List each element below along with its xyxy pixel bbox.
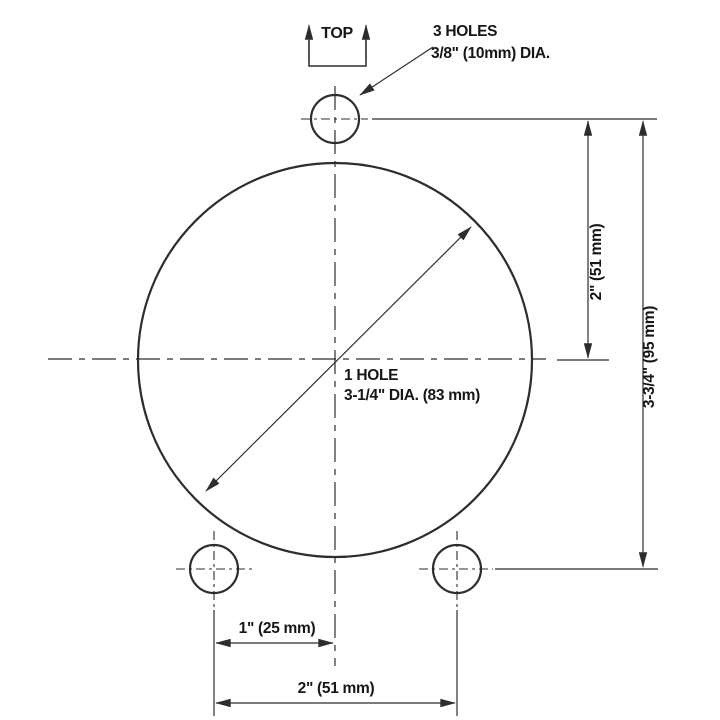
dimension-label-2in-vertical: 2" (51 mm)	[588, 224, 605, 301]
top-marker-bracket	[309, 40, 366, 66]
center-hole-callout-line1: 1 HOLE	[344, 367, 398, 384]
dimension-label-3-3-4in-vertical: 3-3/4" (95 mm)	[641, 306, 658, 408]
top-marker-label: TOP	[321, 25, 353, 42]
three-holes-callout-line1: 3 HOLES	[433, 23, 497, 40]
center-hole-callout-line2: 3-1/4" DIA. (83 mm)	[344, 387, 480, 404]
three-holes-leader-arrow	[360, 47, 433, 95]
dimension-label-1in-horizontal: 1" (25 mm)	[239, 620, 316, 637]
drawing-canvas: TOP 3 HOLES 3/8" (10mm) DIA. 1 HOLE 3-1/…	[0, 0, 720, 720]
dimension-label-2in-horizontal: 2" (51 mm)	[298, 680, 375, 697]
three-holes-callout-line2: 3/8" (10mm) DIA.	[431, 45, 550, 62]
drilling-template-drawing: TOP 3 HOLES 3/8" (10mm) DIA. 1 HOLE 3-1/…	[0, 0, 720, 720]
